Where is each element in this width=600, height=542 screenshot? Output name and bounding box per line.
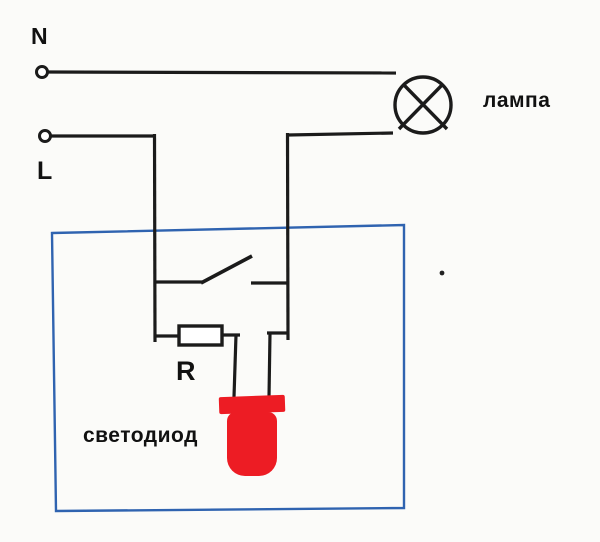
led-label: светодиод <box>83 425 198 446</box>
lamp-icon <box>395 77 451 133</box>
line-drop-wire <box>155 134 156 342</box>
lamp-label: лампа <box>483 90 550 111</box>
line-terminal <box>40 131 51 142</box>
circuit-diagram: N L лампа R светодиод <box>0 0 600 542</box>
line-label: L <box>37 159 52 184</box>
neutral-terminal <box>37 67 48 78</box>
led-left-lead <box>234 335 236 397</box>
led-body <box>227 412 277 476</box>
led-icon <box>219 395 286 476</box>
dot-mark <box>440 271 445 276</box>
led-right-lead <box>269 333 270 397</box>
neutral-label: N <box>31 25 48 48</box>
diagram-drawing <box>0 0 600 542</box>
lamp-cross-line-1 <box>403 84 447 129</box>
lamp-return-wire <box>288 133 393 135</box>
led-flange <box>219 395 286 414</box>
neutral-wire <box>48 72 396 73</box>
lamp-drop-wire <box>288 133 289 340</box>
resistor-body <box>179 326 222 345</box>
resistor-label: R <box>176 358 196 385</box>
switch-blade <box>201 256 252 283</box>
lamp-cross-line-2 <box>399 84 443 129</box>
